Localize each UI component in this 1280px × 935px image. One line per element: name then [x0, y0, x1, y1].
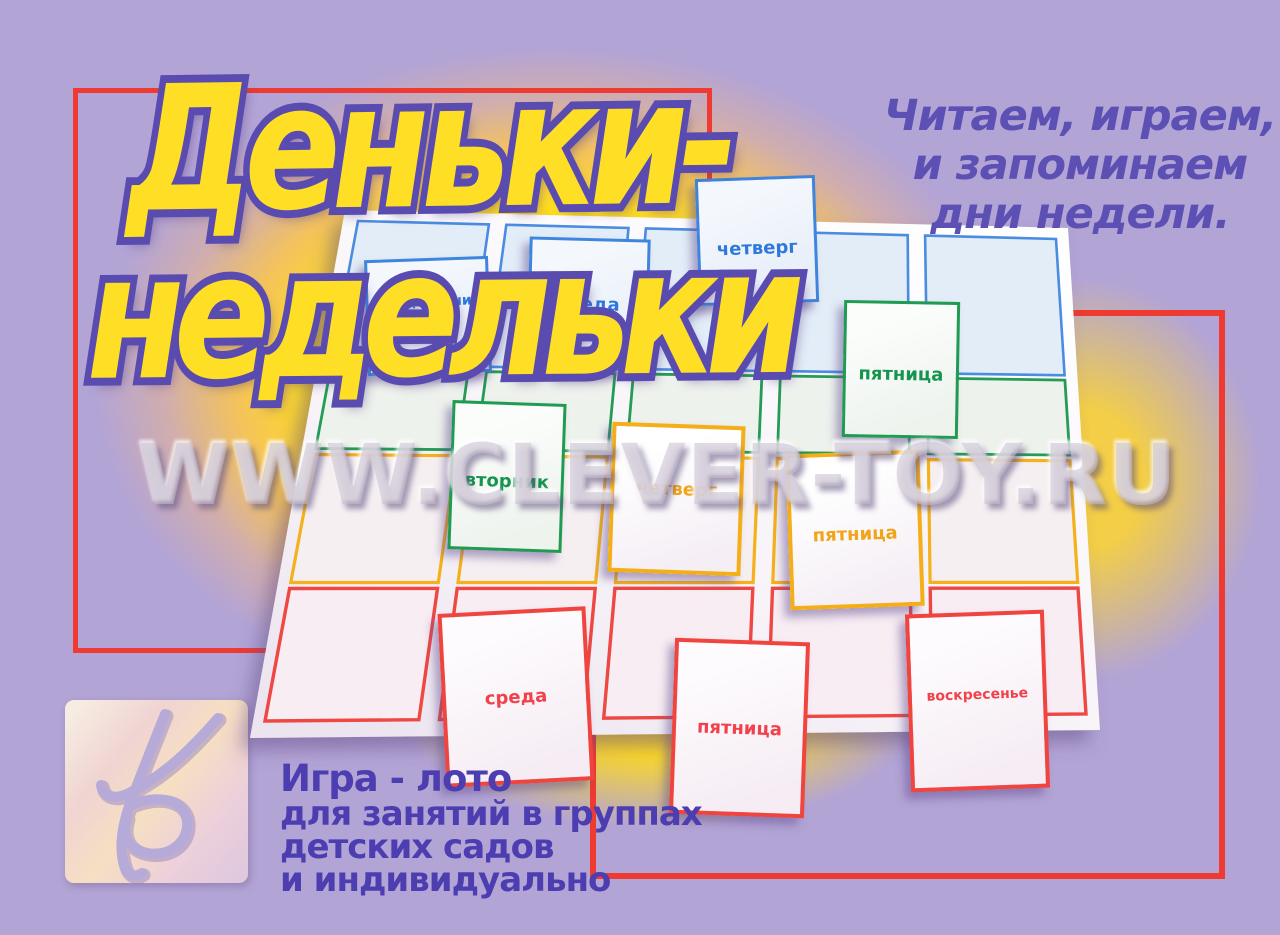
description-line: Игра - лото: [280, 760, 702, 798]
day-card-пятница: пятница: [785, 450, 924, 611]
day-card-label: вторник: [464, 469, 549, 493]
description-line: и индивидуально: [280, 864, 702, 897]
day-card-четверг: четверг: [607, 422, 745, 577]
day-card-label: пятница: [812, 523, 898, 547]
day-card-вторник: вторник: [447, 400, 566, 553]
tagline: Читаем, играем, и запоминаем дни недели.: [880, 92, 1280, 239]
board-cell-red-row: [265, 588, 438, 721]
product-description: Игра - лото для занятий в группах детски…: [280, 760, 702, 897]
board-cell-orange-row: [928, 460, 1077, 583]
day-card-label: среда: [484, 685, 547, 709]
game-box-cover: понедельниксредачетвергпятницавторникчет…: [0, 0, 1280, 935]
tagline-line: и запоминаем: [880, 141, 1280, 190]
day-card-label: четверг: [636, 478, 718, 502]
day-card-label: пятница: [697, 716, 783, 740]
day-card-label: пятница: [858, 364, 943, 386]
day-card-воскресенье: воскресенье: [905, 610, 1050, 793]
title-text: недельки: [86, 212, 794, 419]
board-cell-orange-row: [291, 455, 456, 583]
day-card-label: воскресенье: [926, 686, 1028, 706]
tagline-line: Читаем, играем,: [880, 92, 1280, 141]
tagline-line: дни недели.: [880, 190, 1280, 239]
day-card-пятница: пятница: [842, 300, 960, 439]
page-title-line2: недельки недельки: [86, 212, 794, 419]
